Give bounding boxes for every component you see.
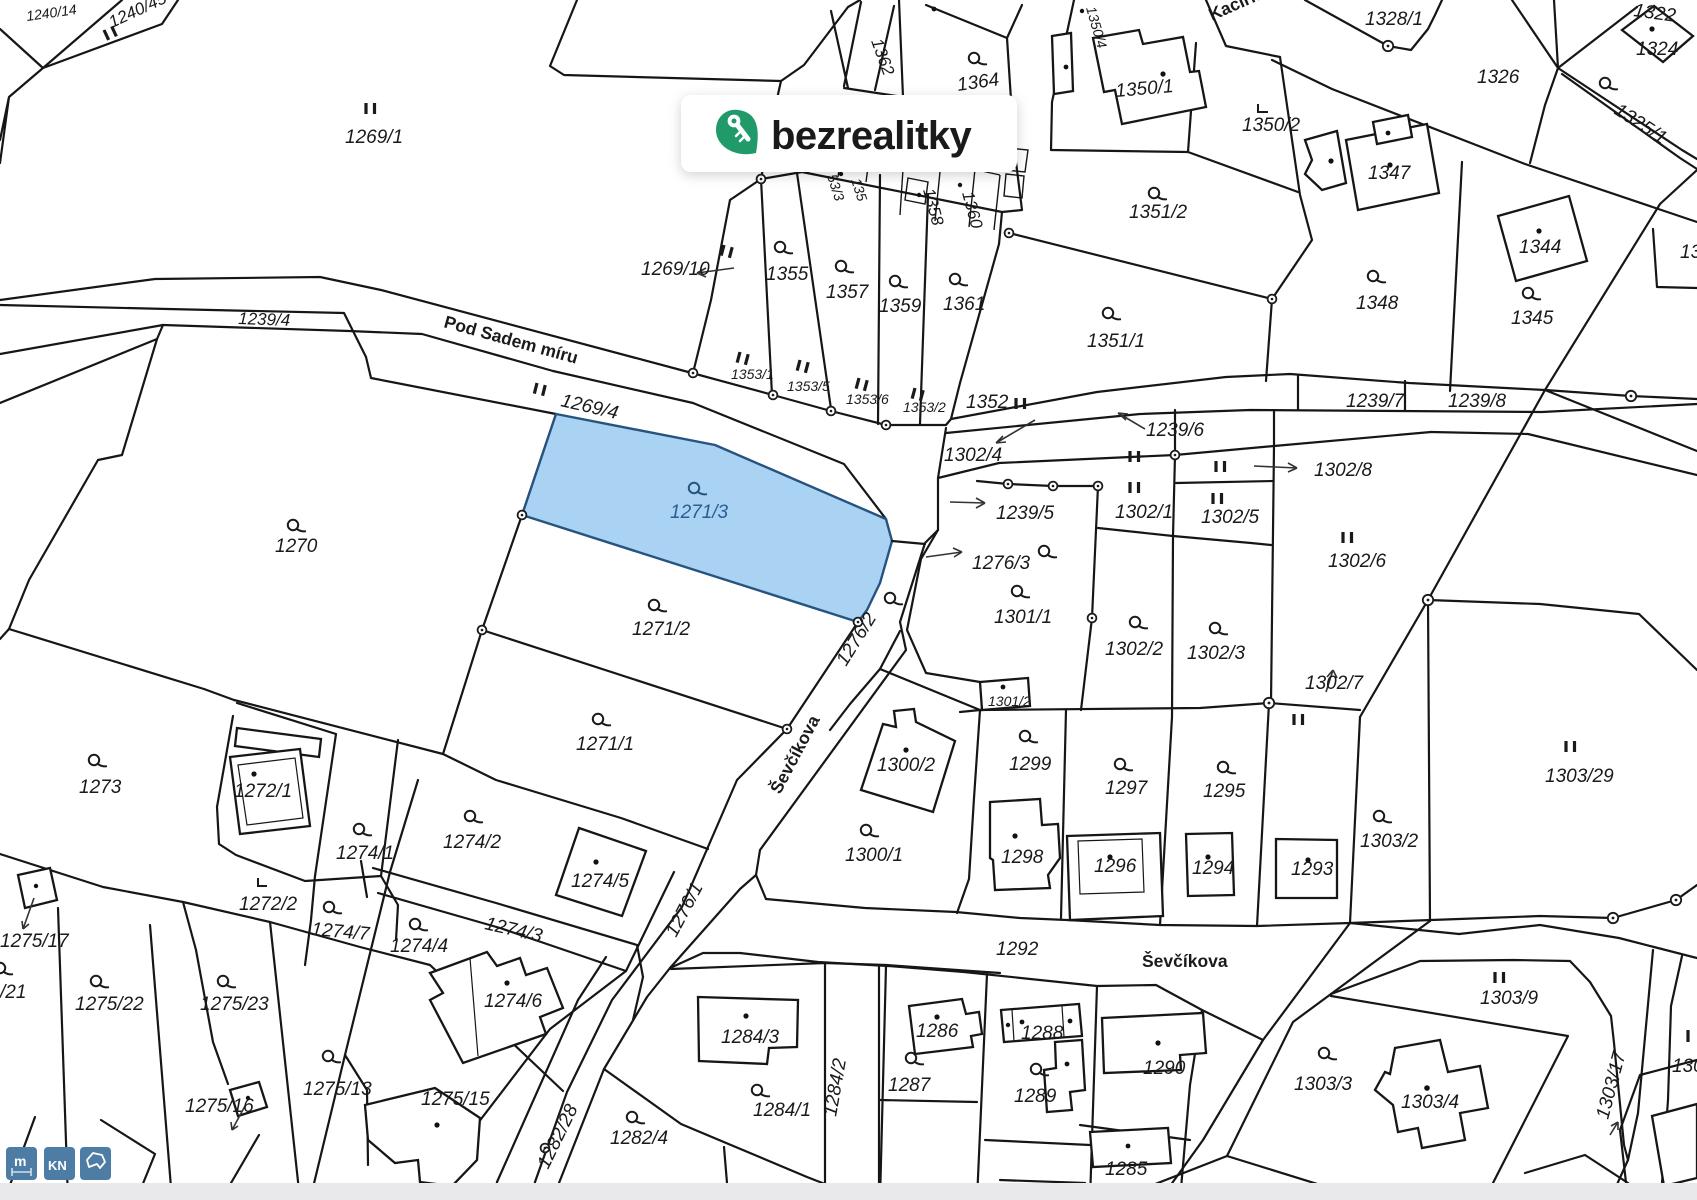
svg-text:1284/3: 1284/3 bbox=[721, 1027, 780, 1048]
svg-text:1352: 1352 bbox=[966, 392, 1009, 413]
svg-text:1303/2: 1303/2 bbox=[1360, 831, 1419, 852]
svg-text:1303/9: 1303/9 bbox=[1480, 988, 1539, 1009]
svg-text:1275/23: 1275/23 bbox=[200, 994, 269, 1015]
svg-text:1272/2: 1272/2 bbox=[239, 894, 298, 915]
svg-text:1285: 1285 bbox=[1105, 1159, 1148, 1180]
svg-text:1344: 1344 bbox=[1519, 237, 1561, 258]
svg-text:1302/4: 1302/4 bbox=[944, 445, 1002, 466]
svg-text:1273: 1273 bbox=[79, 777, 122, 798]
svg-text:1271/2: 1271/2 bbox=[632, 619, 691, 640]
svg-text:m: m bbox=[14, 1153, 26, 1169]
svg-text:1295: 1295 bbox=[1203, 781, 1246, 802]
svg-text:1357: 1357 bbox=[826, 282, 870, 303]
svg-text:1275/13: 1275/13 bbox=[303, 1079, 372, 1100]
svg-text:1300/1: 1300/1 bbox=[845, 845, 903, 866]
svg-text:1301/1: 1301/1 bbox=[994, 607, 1052, 628]
svg-text:1239/8: 1239/8 bbox=[1448, 391, 1507, 412]
svg-text:1301/2: 1301/2 bbox=[988, 693, 1031, 709]
svg-text:1353/6: 1353/6 bbox=[846, 391, 889, 407]
svg-text:1351/2: 1351/2 bbox=[1129, 202, 1188, 223]
svg-text:1284/1: 1284/1 bbox=[753, 1100, 811, 1121]
svg-text:1275/16: 1275/16 bbox=[185, 1096, 254, 1117]
svg-text:bezrealitky: bezrealitky bbox=[771, 114, 973, 158]
svg-text:1293: 1293 bbox=[1291, 859, 1334, 880]
svg-text:1351/1: 1351/1 bbox=[1087, 331, 1145, 352]
svg-text:1345: 1345 bbox=[1511, 308, 1554, 329]
svg-text:1239/6: 1239/6 bbox=[1146, 420, 1205, 441]
svg-text:1359: 1359 bbox=[879, 296, 922, 317]
svg-text:1275/15: 1275/15 bbox=[421, 1089, 490, 1110]
svg-text:1271/3: 1271/3 bbox=[670, 502, 729, 523]
svg-text:130: 130 bbox=[1672, 1056, 1697, 1077]
svg-text:1274/1: 1274/1 bbox=[336, 843, 394, 864]
svg-text:1298: 1298 bbox=[1001, 847, 1044, 868]
svg-text:1303/4: 1303/4 bbox=[1401, 1092, 1459, 1113]
svg-text:1348: 1348 bbox=[1356, 293, 1399, 314]
svg-text:1289: 1289 bbox=[1014, 1086, 1057, 1107]
svg-text:1361: 1361 bbox=[943, 294, 985, 315]
svg-text:1324: 1324 bbox=[1636, 39, 1678, 60]
svg-text:1287: 1287 bbox=[888, 1075, 932, 1096]
svg-text:1272/1: 1272/1 bbox=[234, 781, 292, 802]
svg-text:1275/17: 1275/17 bbox=[0, 931, 70, 952]
svg-text:1299: 1299 bbox=[1009, 754, 1052, 775]
svg-text:1271/1: 1271/1 bbox=[576, 734, 634, 755]
svg-text:1288: 1288 bbox=[1021, 1023, 1064, 1044]
svg-text:1274/2: 1274/2 bbox=[443, 832, 502, 853]
svg-text:1294: 1294 bbox=[1192, 858, 1234, 879]
svg-text:1282/4: 1282/4 bbox=[610, 1128, 668, 1149]
svg-text:134: 134 bbox=[1680, 242, 1697, 263]
svg-text:1353/5: 1353/5 bbox=[787, 378, 830, 394]
svg-text:1297: 1297 bbox=[1105, 778, 1149, 799]
svg-text:1302/7: 1302/7 bbox=[1305, 673, 1365, 694]
svg-text:1296: 1296 bbox=[1094, 856, 1137, 877]
svg-text:1350/2: 1350/2 bbox=[1242, 115, 1301, 136]
svg-text:1355: 1355 bbox=[766, 264, 809, 285]
svg-text:/21: /21 bbox=[0, 982, 26, 1003]
svg-text:1302/8: 1302/8 bbox=[1314, 460, 1373, 481]
svg-text:1353/2: 1353/2 bbox=[903, 399, 946, 415]
svg-text:Ševčíkova: Ševčíkova bbox=[1142, 950, 1228, 971]
svg-text:1269/1: 1269/1 bbox=[345, 127, 403, 148]
svg-text:1302/2: 1302/2 bbox=[1105, 639, 1164, 660]
svg-text:1239/4: 1239/4 bbox=[238, 309, 291, 330]
svg-text:1292: 1292 bbox=[996, 939, 1039, 960]
svg-text:1303/3: 1303/3 bbox=[1294, 1074, 1353, 1095]
svg-text:1239/7: 1239/7 bbox=[1346, 391, 1406, 412]
svg-text:1353/1: 1353/1 bbox=[731, 366, 774, 382]
svg-text:1326: 1326 bbox=[1477, 67, 1520, 88]
svg-text:1239/5: 1239/5 bbox=[996, 503, 1055, 524]
svg-text:1303/29: 1303/29 bbox=[1545, 766, 1614, 787]
svg-text:1269/10: 1269/10 bbox=[641, 259, 710, 280]
svg-text:1302/3: 1302/3 bbox=[1187, 643, 1246, 664]
svg-text:KN: KN bbox=[48, 1158, 67, 1173]
svg-text:1302/5: 1302/5 bbox=[1201, 507, 1260, 528]
svg-text:1286: 1286 bbox=[916, 1021, 959, 1042]
svg-text:1275/22: 1275/22 bbox=[75, 994, 144, 1015]
svg-text:1302/1: 1302/1 bbox=[1115, 502, 1173, 523]
svg-text:1274/5: 1274/5 bbox=[571, 871, 630, 892]
svg-text:1274/6: 1274/6 bbox=[484, 991, 543, 1012]
svg-text:1328/1: 1328/1 bbox=[1365, 9, 1423, 30]
svg-text:1302/6: 1302/6 bbox=[1328, 551, 1387, 572]
svg-text:1276/3: 1276/3 bbox=[972, 553, 1031, 574]
svg-text:1300/2: 1300/2 bbox=[877, 755, 936, 776]
svg-text:1270: 1270 bbox=[275, 536, 318, 557]
svg-text:1290: 1290 bbox=[1143, 1058, 1186, 1079]
svg-text:1274/4: 1274/4 bbox=[390, 936, 448, 957]
svg-text:1347: 1347 bbox=[1368, 163, 1412, 184]
